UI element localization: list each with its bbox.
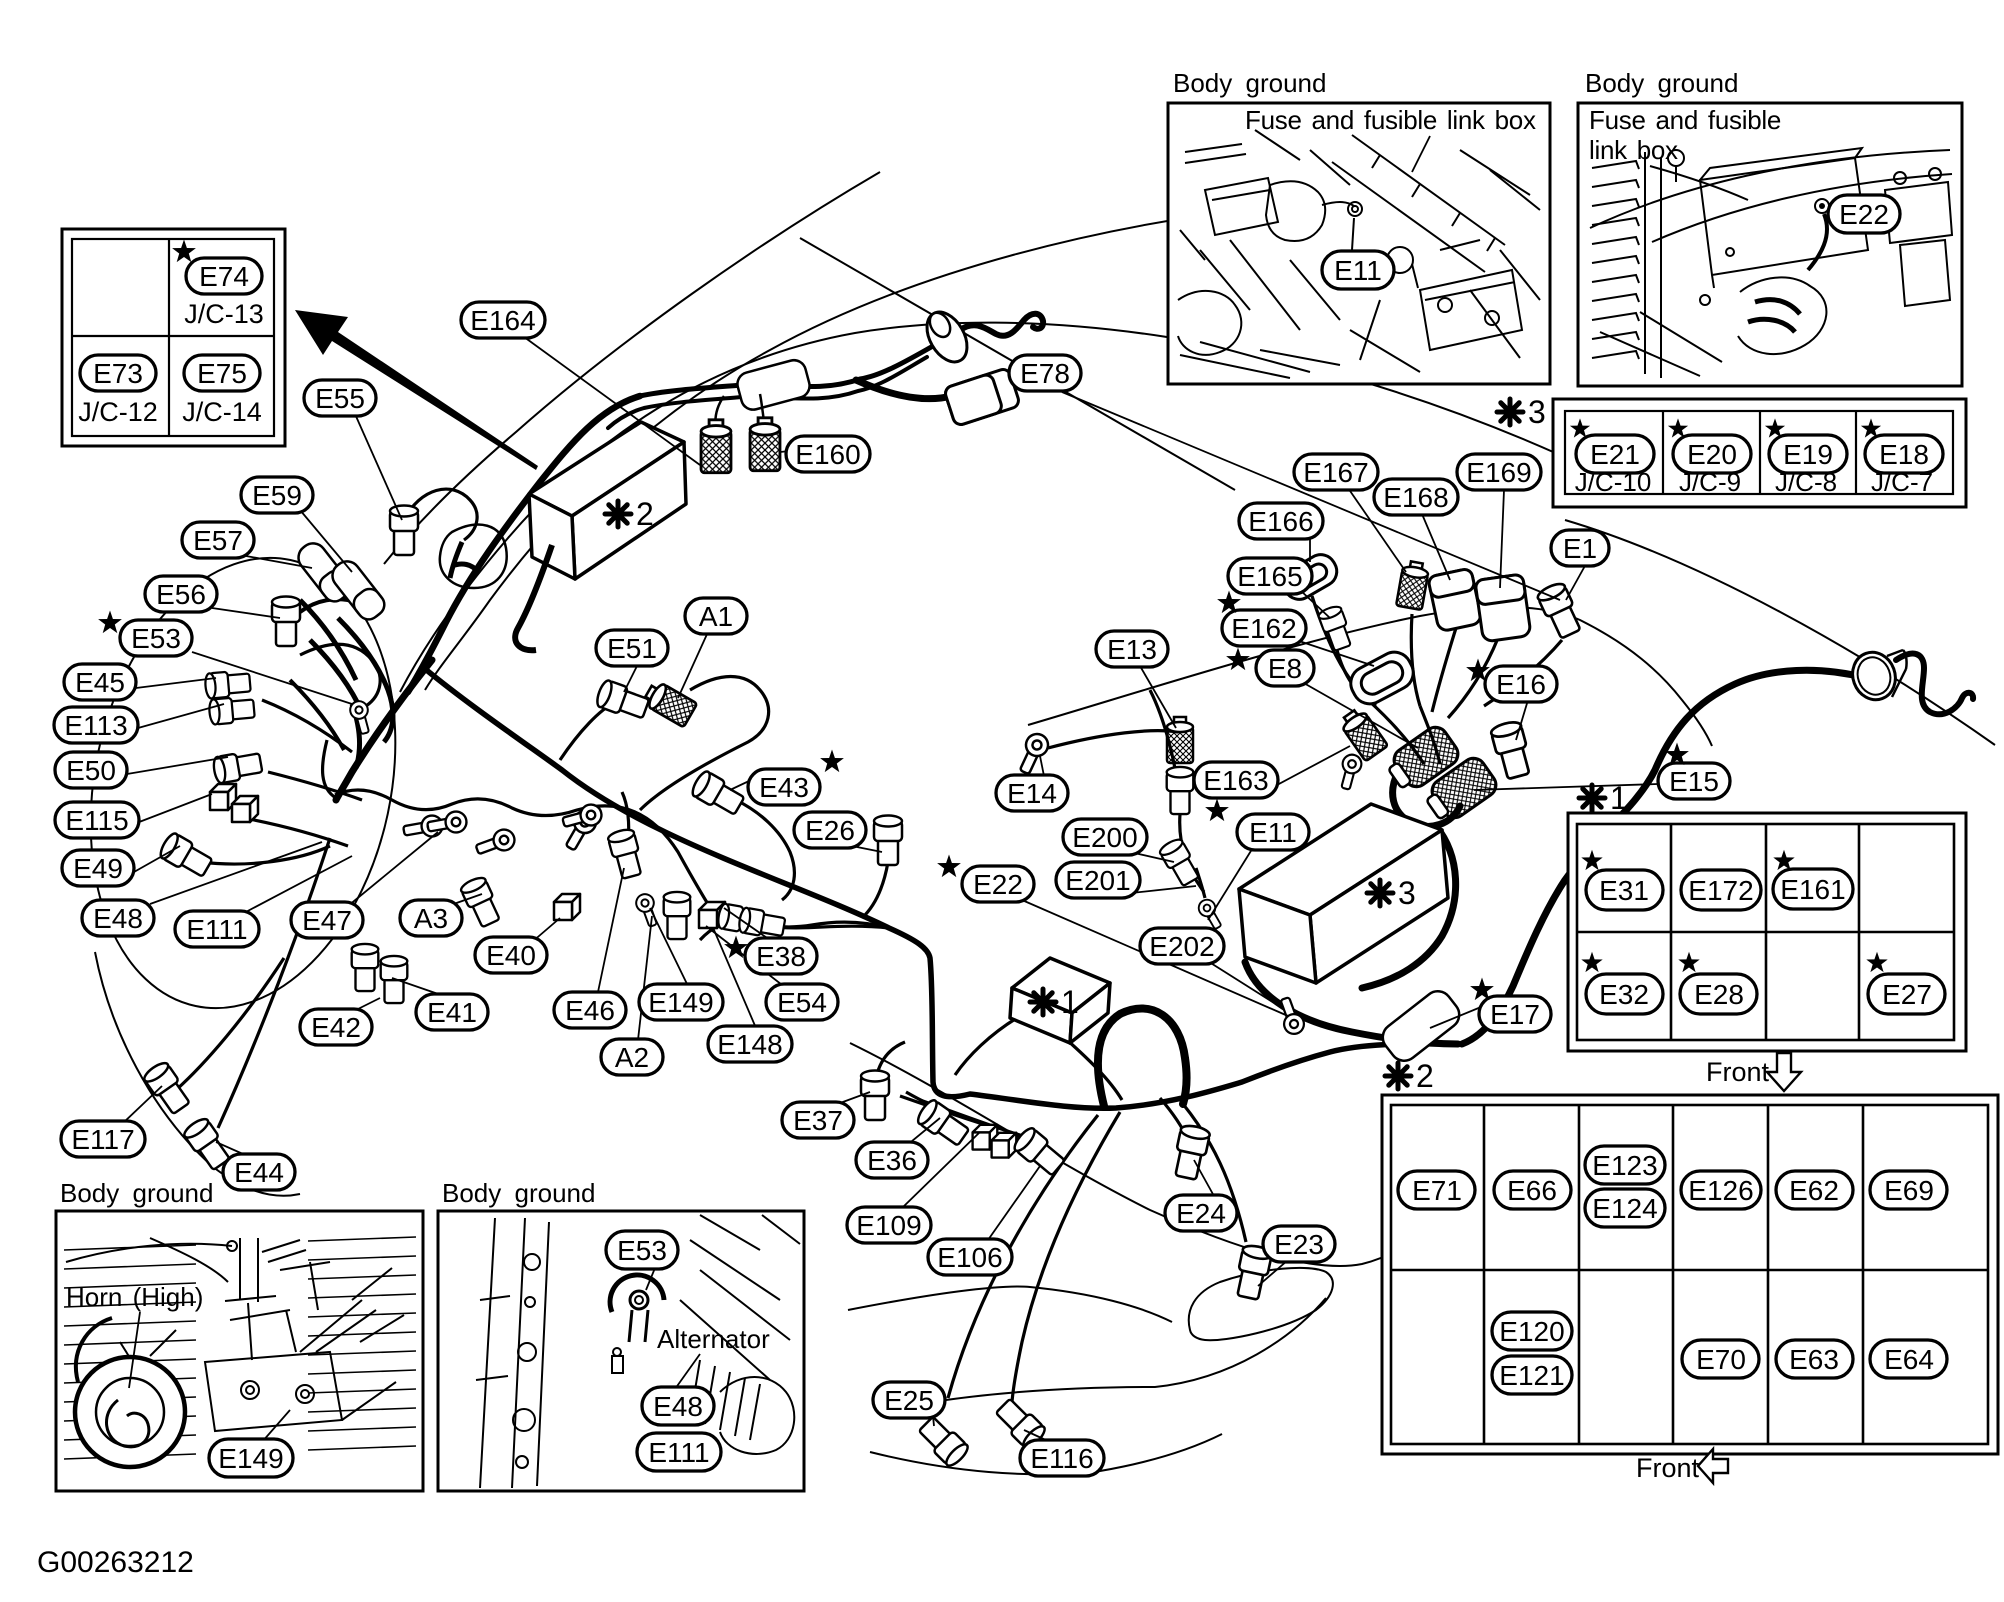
svg-text:E202: E202 xyxy=(1149,931,1214,962)
svg-text:E50: E50 xyxy=(66,755,116,786)
svg-text:E17: E17 xyxy=(1490,999,1540,1030)
svg-text:E164: E164 xyxy=(470,305,535,336)
svg-text:E20: E20 xyxy=(1687,439,1737,470)
svg-text:E57: E57 xyxy=(193,525,243,556)
svg-text:E70: E70 xyxy=(1696,1344,1746,1375)
svg-text:E36: E36 xyxy=(867,1145,917,1176)
svg-text:E62: E62 xyxy=(1789,1175,1839,1206)
svg-text:E166: E166 xyxy=(1248,506,1313,537)
svg-text:E15: E15 xyxy=(1669,766,1719,797)
svg-text:J/C-10: J/C-10 xyxy=(1575,467,1652,497)
svg-text:E111: E111 xyxy=(186,914,247,945)
svg-text:A2: A2 xyxy=(615,1042,649,1073)
svg-text:E24: E24 xyxy=(1176,1198,1226,1229)
svg-text:Fuse and fusible: Fuse and fusible xyxy=(1589,105,1781,135)
svg-text:E49: E49 xyxy=(73,853,123,884)
svg-text:J/C-14: J/C-14 xyxy=(182,397,262,427)
svg-text:E117: E117 xyxy=(71,1124,134,1155)
svg-text:E123: E123 xyxy=(1592,1150,1657,1181)
svg-text:E11: E11 xyxy=(1334,255,1382,286)
svg-text:2: 2 xyxy=(636,496,654,532)
svg-text:E42: E42 xyxy=(311,1012,361,1043)
svg-text:E44: E44 xyxy=(234,1157,284,1188)
svg-text:E18: E18 xyxy=(1879,439,1929,470)
svg-text:E74: E74 xyxy=(199,261,249,292)
svg-text:E25: E25 xyxy=(884,1385,934,1416)
svg-text:E124: E124 xyxy=(1592,1193,1657,1224)
svg-text:E116: E116 xyxy=(1030,1443,1093,1474)
svg-text:E22: E22 xyxy=(973,869,1023,900)
svg-text:Front: Front xyxy=(1636,1453,1700,1483)
svg-text:E14: E14 xyxy=(1007,778,1057,809)
svg-text:E22: E22 xyxy=(1839,199,1889,230)
svg-text:J/C-13: J/C-13 xyxy=(184,299,264,329)
svg-text:E19: E19 xyxy=(1783,439,1833,470)
svg-text:A1: A1 xyxy=(699,601,733,632)
svg-text:E48: E48 xyxy=(653,1391,703,1422)
svg-text:Alternator: Alternator xyxy=(657,1324,770,1354)
svg-text:E51: E51 xyxy=(607,633,657,664)
svg-text:E46: E46 xyxy=(565,995,615,1026)
svg-text:E41: E41 xyxy=(427,997,477,1028)
svg-text:E8: E8 xyxy=(1268,653,1302,684)
svg-text:E45: E45 xyxy=(75,667,125,698)
svg-text:E47: E47 xyxy=(302,905,352,936)
svg-text:E13: E13 xyxy=(1107,634,1157,665)
svg-text:E66: E66 xyxy=(1507,1175,1557,1206)
svg-text:1: 1 xyxy=(1061,984,1079,1020)
svg-text:E172: E172 xyxy=(1688,875,1753,906)
svg-text:E160: E160 xyxy=(795,439,860,470)
svg-text:E201: E201 xyxy=(1065,865,1130,896)
svg-text:E149: E149 xyxy=(218,1443,283,1474)
svg-text:E149: E149 xyxy=(648,987,713,1018)
svg-text:Body ground: Body ground xyxy=(442,1178,595,1208)
svg-text:Horn (High): Horn (High) xyxy=(66,1282,203,1312)
svg-text:E37: E37 xyxy=(793,1105,843,1136)
svg-text:Front: Front xyxy=(1706,1057,1770,1087)
svg-text:Body ground: Body ground xyxy=(60,1178,213,1208)
svg-text:E163: E163 xyxy=(1203,765,1268,796)
svg-text:E32: E32 xyxy=(1599,979,1649,1010)
svg-text:E40: E40 xyxy=(486,940,536,971)
svg-text:E43: E43 xyxy=(759,772,809,803)
svg-text:E200: E200 xyxy=(1072,822,1137,853)
svg-text:E167: E167 xyxy=(1303,457,1368,488)
svg-text:E56: E56 xyxy=(156,579,206,610)
svg-text:E16: E16 xyxy=(1496,669,1546,700)
svg-text:E113: E113 xyxy=(64,710,127,741)
svg-text:E71: E71 xyxy=(1412,1175,1462,1206)
svg-text:E48: E48 xyxy=(93,903,143,934)
svg-text:A3: A3 xyxy=(414,903,448,934)
svg-text:E126: E126 xyxy=(1688,1175,1753,1206)
svg-text:E69: E69 xyxy=(1884,1175,1934,1206)
svg-text:E73: E73 xyxy=(93,358,143,389)
svg-text:E1: E1 xyxy=(1563,533,1597,564)
svg-text:J/C-12: J/C-12 xyxy=(78,397,158,427)
svg-text:E26: E26 xyxy=(805,815,855,846)
svg-text:E11: E11 xyxy=(1249,817,1297,848)
svg-text:E53: E53 xyxy=(131,623,181,654)
svg-text:E111: E111 xyxy=(648,1437,709,1468)
svg-text:J/C-8: J/C-8 xyxy=(1775,467,1837,497)
svg-text:E78: E78 xyxy=(1020,358,1070,389)
svg-text:J/C-7: J/C-7 xyxy=(1871,467,1933,497)
svg-text:E109: E109 xyxy=(856,1210,921,1241)
svg-text:G00263212: G00263212 xyxy=(37,1546,194,1579)
svg-text:E53: E53 xyxy=(617,1235,667,1266)
svg-text:E55: E55 xyxy=(315,383,365,414)
svg-text:E27: E27 xyxy=(1882,979,1932,1010)
svg-text:E54: E54 xyxy=(777,987,827,1018)
svg-text:E63: E63 xyxy=(1789,1344,1839,1375)
svg-text:E169: E169 xyxy=(1466,457,1531,488)
svg-text:E165: E165 xyxy=(1237,561,1302,592)
svg-text:E115: E115 xyxy=(65,805,128,836)
svg-text:E161: E161 xyxy=(1780,874,1845,905)
svg-text:3: 3 xyxy=(1528,394,1546,430)
svg-text:E120: E120 xyxy=(1499,1316,1564,1347)
svg-text:1: 1 xyxy=(1610,780,1628,816)
svg-text:2: 2 xyxy=(1416,1058,1434,1094)
svg-text:E75: E75 xyxy=(197,358,247,389)
svg-text:E162: E162 xyxy=(1231,613,1296,644)
svg-text:E64: E64 xyxy=(1884,1344,1934,1375)
svg-text:Body ground: Body ground xyxy=(1173,68,1326,98)
svg-text:Body ground: Body ground xyxy=(1585,68,1738,98)
svg-text:E38: E38 xyxy=(756,941,806,972)
svg-text:E59: E59 xyxy=(252,480,302,511)
svg-text:E121: E121 xyxy=(1499,1360,1564,1391)
svg-text:link box: link box xyxy=(1589,135,1678,165)
svg-text:3: 3 xyxy=(1398,875,1416,911)
svg-text:J/C-9: J/C-9 xyxy=(1679,467,1741,497)
svg-text:Fuse and fusible link box: Fuse and fusible link box xyxy=(1245,105,1536,135)
svg-text:E31: E31 xyxy=(1599,875,1649,906)
svg-text:E168: E168 xyxy=(1383,482,1448,513)
svg-text:E148: E148 xyxy=(717,1029,782,1060)
svg-text:E21: E21 xyxy=(1590,439,1640,470)
svg-text:E106: E106 xyxy=(937,1242,1002,1273)
svg-text:E28: E28 xyxy=(1694,979,1744,1010)
svg-text:E23: E23 xyxy=(1274,1229,1324,1260)
